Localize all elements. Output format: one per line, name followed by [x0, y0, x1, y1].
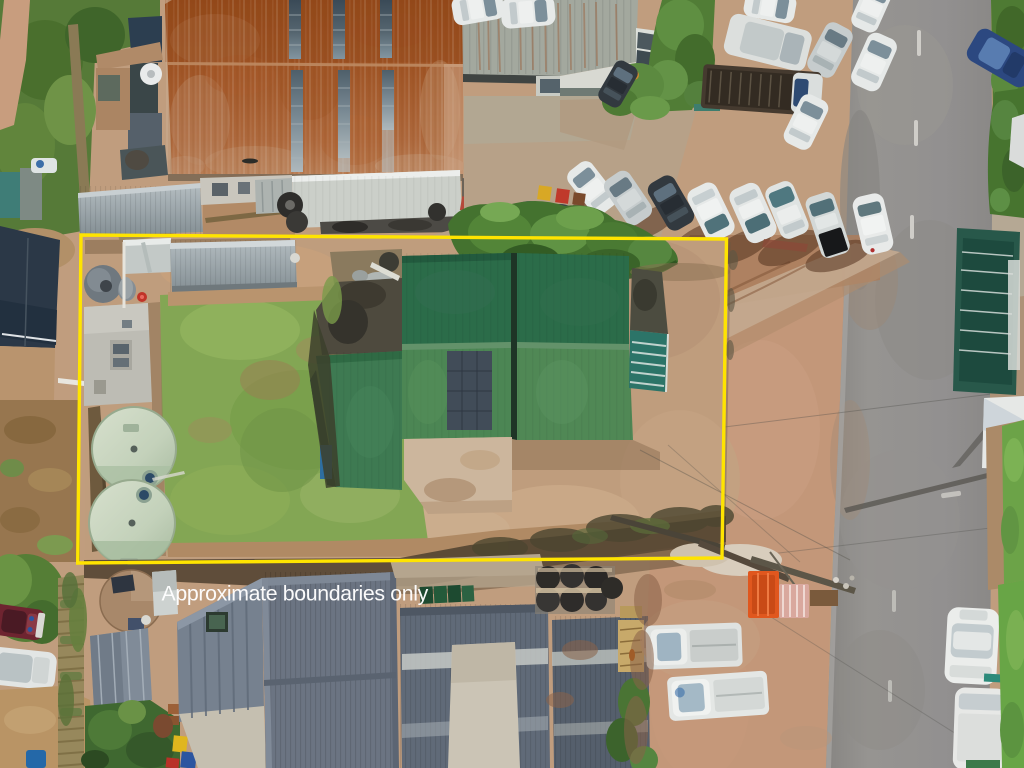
svg-text:Approximate boundaries only: Approximate boundaries only: [162, 582, 429, 606]
